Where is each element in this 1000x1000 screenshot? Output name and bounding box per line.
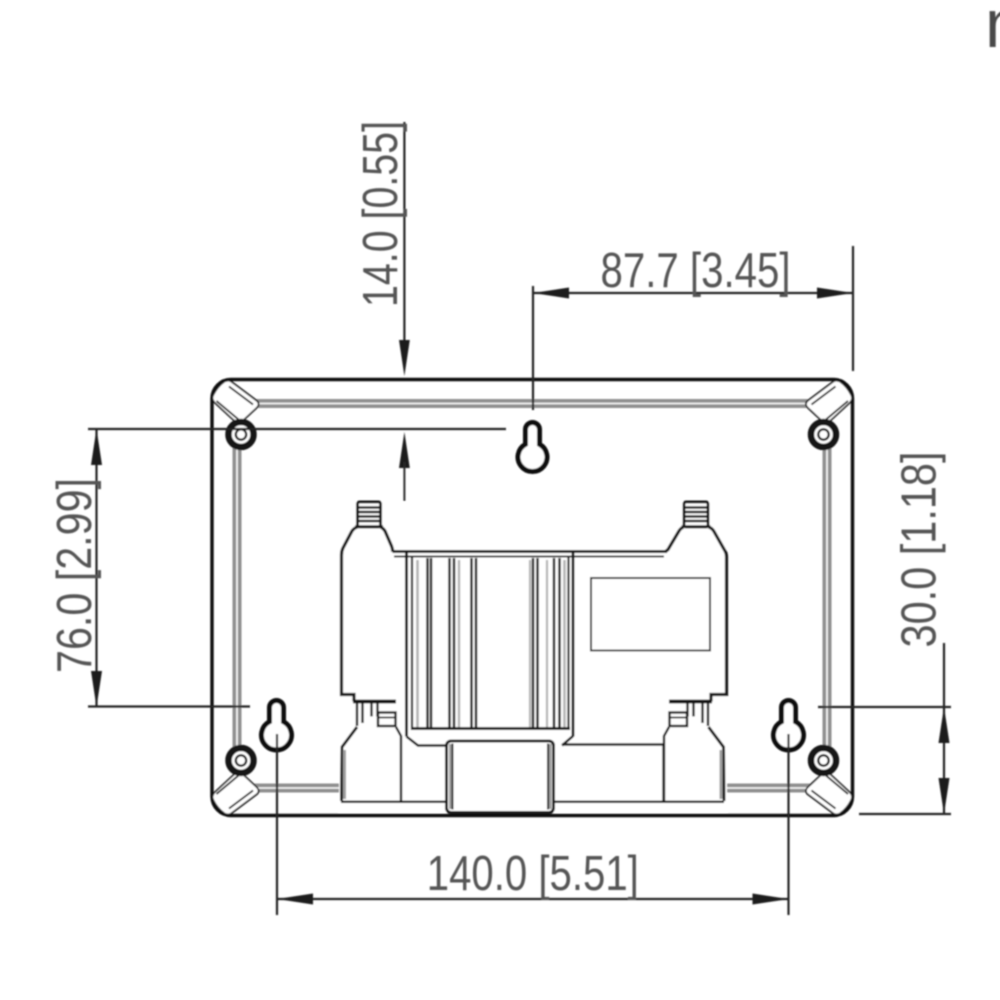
svg-text:14.0 [0.55]: 14.0 [0.55] <box>354 121 408 307</box>
svg-text:87.7 [3.45]: 87.7 [3.45] <box>601 244 791 298</box>
svg-text:30.0 [1.18]: 30.0 [1.18] <box>893 452 947 648</box>
svg-text:mm: mm <box>985 0 1000 62</box>
svg-text:76.0 [2.99]: 76.0 [2.99] <box>48 478 102 673</box>
svg-text:140.0 [5.51]: 140.0 [5.51] <box>427 847 639 901</box>
